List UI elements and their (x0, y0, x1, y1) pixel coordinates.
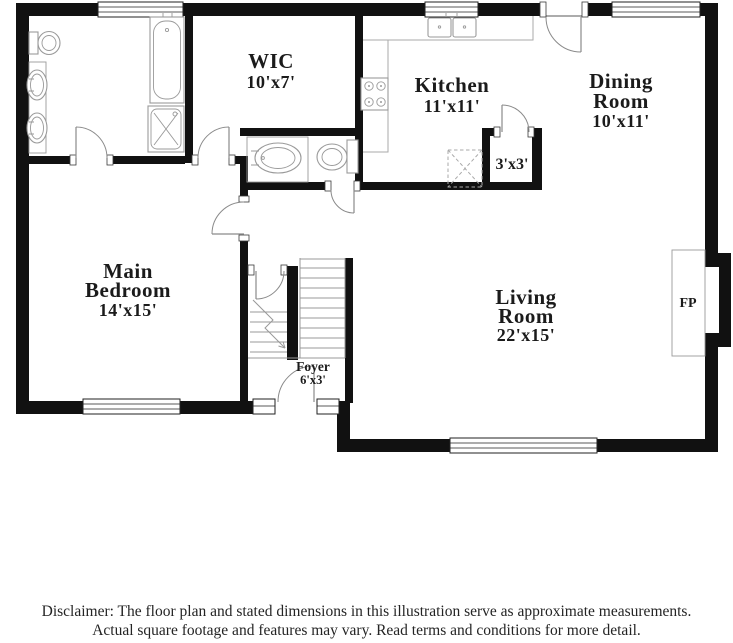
closet-door (502, 105, 529, 132)
half-bath-fixtures (247, 137, 358, 182)
label-main-bedroom: Main Bedroom 14'x15' (85, 259, 171, 320)
bathtub (150, 13, 184, 103)
main-bedroom-door (212, 202, 244, 234)
half-bath-door (331, 190, 354, 213)
main-bathroom-fixtures (27, 13, 184, 153)
disclaimer-line-1: Disclaimer: The floor plan and stated di… (0, 602, 733, 621)
dining-dims: 10'x11' (592, 111, 650, 131)
kitchen-name: Kitchen (415, 73, 490, 97)
wic-dims: 10'x7' (246, 72, 295, 92)
living-dims: 22'x15' (497, 325, 556, 345)
dining-window (612, 2, 700, 17)
closet-dims: 3'x3' (496, 156, 529, 173)
bedroom-name-2: Bedroom (85, 278, 171, 302)
half-bath-vanity (247, 137, 308, 182)
stair-direction-arrow (253, 300, 285, 348)
wic-name: WIC (248, 49, 294, 73)
floorplan-page: WIC 10'x7' Kitchen 11'x11' Dining Room 1… (0, 0, 733, 643)
label-dining-room: Dining Room 10'x11' (589, 69, 653, 131)
foyer-dims: 6'x3' (300, 373, 326, 387)
main-bathroom-door (76, 127, 107, 158)
dining-name-2: Room (593, 89, 649, 113)
label-living-room: Living Room 22'x15' (495, 285, 556, 345)
stove (361, 78, 388, 110)
front-door-sidelight-left (253, 399, 275, 414)
toilet (29, 32, 60, 55)
wic-door (198, 127, 229, 158)
rear-entry-door (546, 16, 582, 52)
disclaimer: Disclaimer: The floor plan and stated di… (0, 602, 733, 640)
disclaimer-line-2: Actual square footage and features may v… (0, 621, 733, 640)
kitchen-window (425, 2, 478, 17)
label-kitchen: Kitchen 11'x11' (415, 73, 490, 116)
fireplace-label: FP (679, 296, 697, 311)
bedroom-dims: 14'x15' (99, 300, 158, 320)
bathroom-window (98, 2, 183, 17)
firebox-opening (701, 267, 719, 333)
bedroom-window (83, 399, 180, 414)
label-wic: WIC 10'x7' (246, 49, 295, 92)
kitchen-dims: 11'x11' (424, 96, 481, 116)
front-door-sidelight-right (317, 399, 339, 414)
foyer-name: Foyer (296, 359, 330, 374)
stairs-down (250, 300, 287, 352)
floorplan-drawing: WIC 10'x7' Kitchen 11'x11' Dining Room 1… (0, 0, 733, 600)
shower (148, 106, 184, 152)
double-vanity (27, 62, 47, 153)
label-foyer: Foyer 6'x3' (296, 359, 330, 387)
living-room-window (450, 438, 597, 453)
half-bath-toilet (317, 140, 358, 173)
basement-stairs-door (256, 271, 284, 299)
appliance-box (448, 150, 482, 187)
